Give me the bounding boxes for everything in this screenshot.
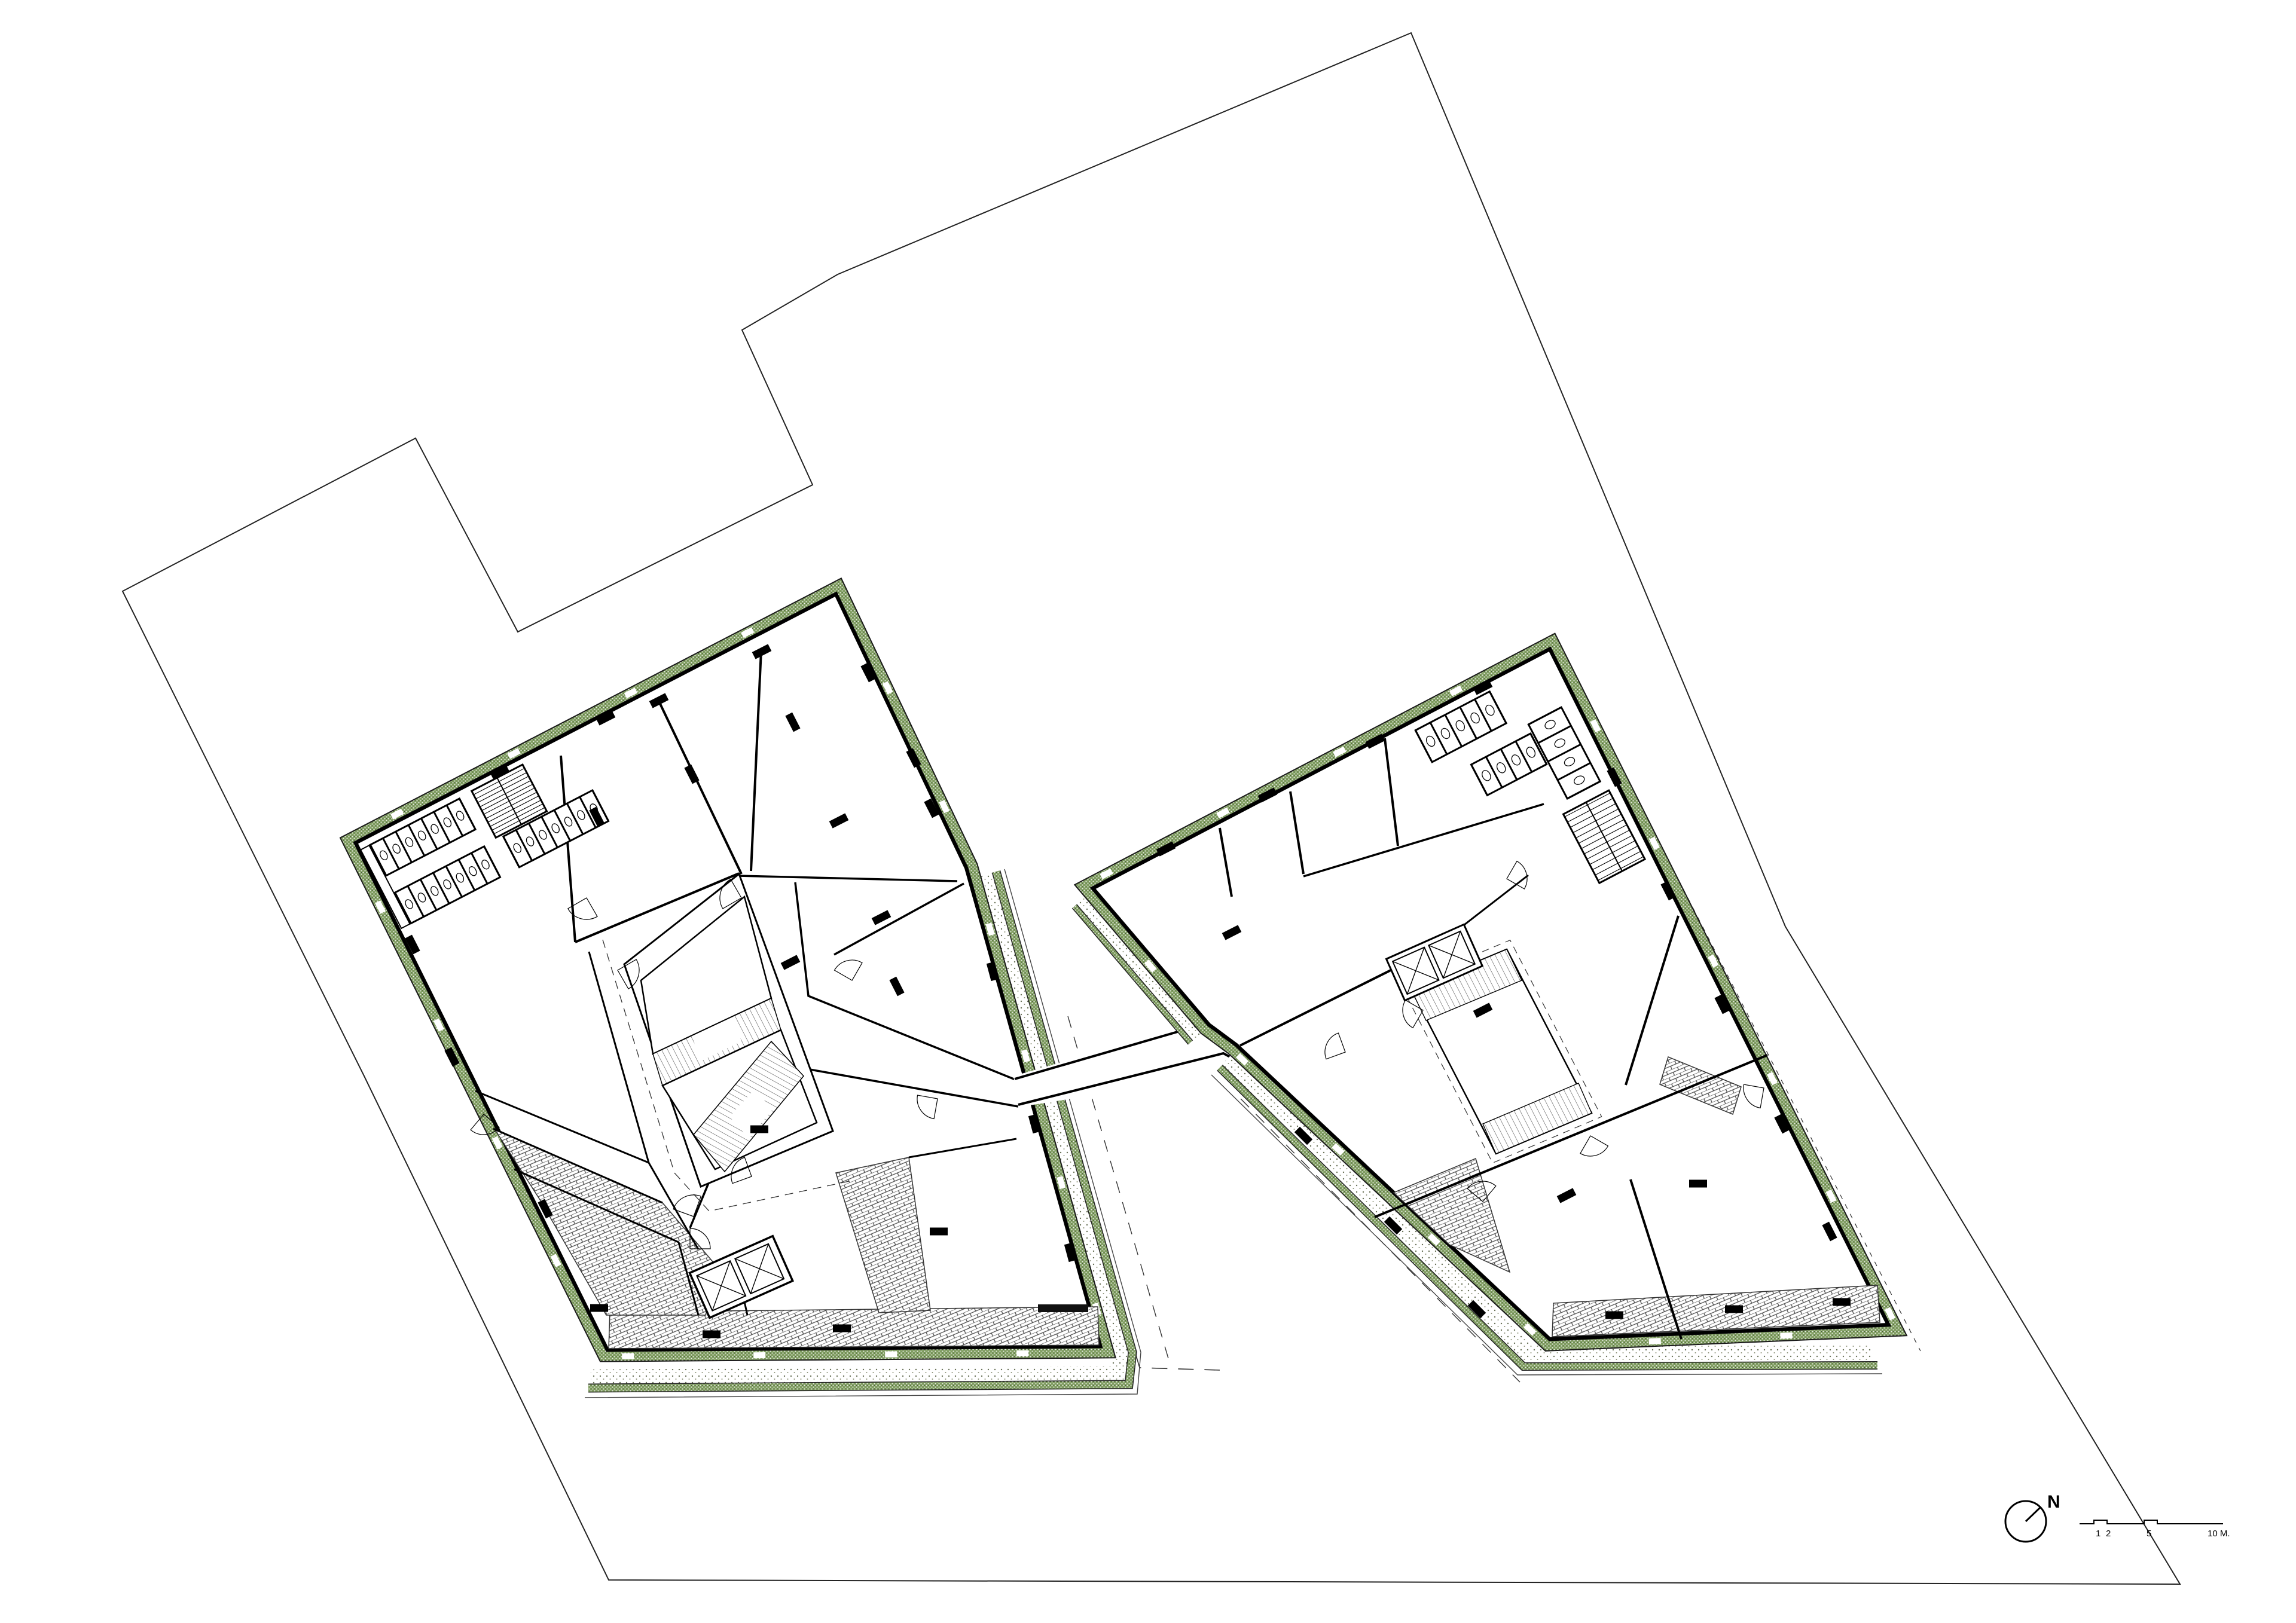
svg-text:1: 1 [2096,1529,2100,1539]
svg-text:N: N [2047,1492,2060,1512]
svg-text:5: 5 [2147,1529,2151,1539]
svg-text:10 M.: 10 M. [2208,1529,2230,1539]
svg-text:2: 2 [2106,1529,2111,1539]
